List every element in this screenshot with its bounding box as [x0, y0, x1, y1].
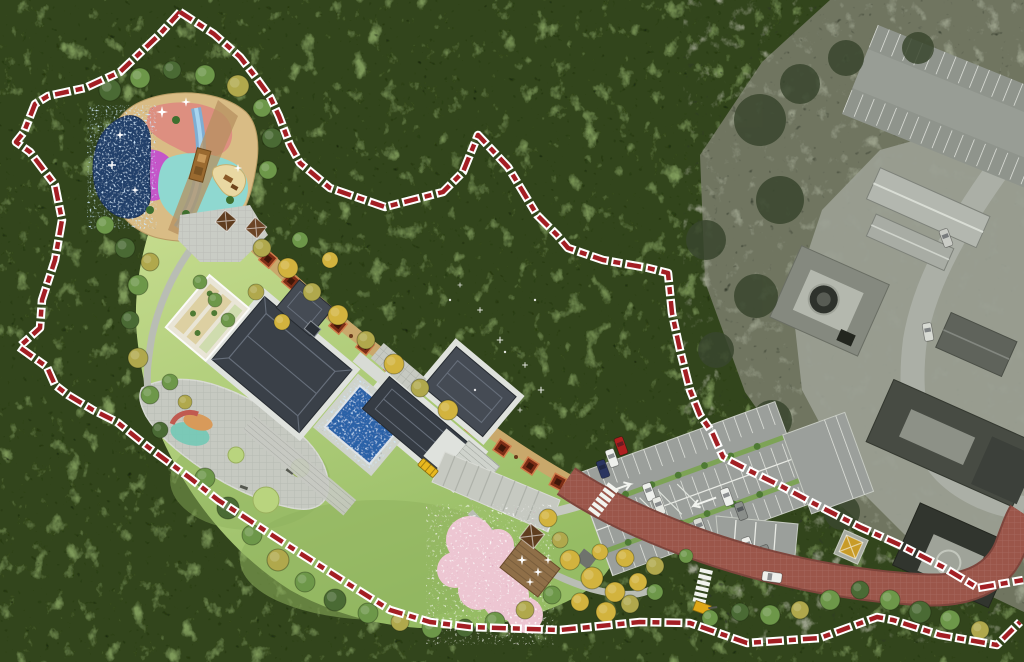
- site-plan-svg: [0, 0, 1024, 662]
- site-plan-image: [0, 0, 1024, 662]
- lawn-circle: [228, 447, 244, 463]
- road-car: [762, 571, 783, 584]
- lawn-circle: [253, 487, 279, 513]
